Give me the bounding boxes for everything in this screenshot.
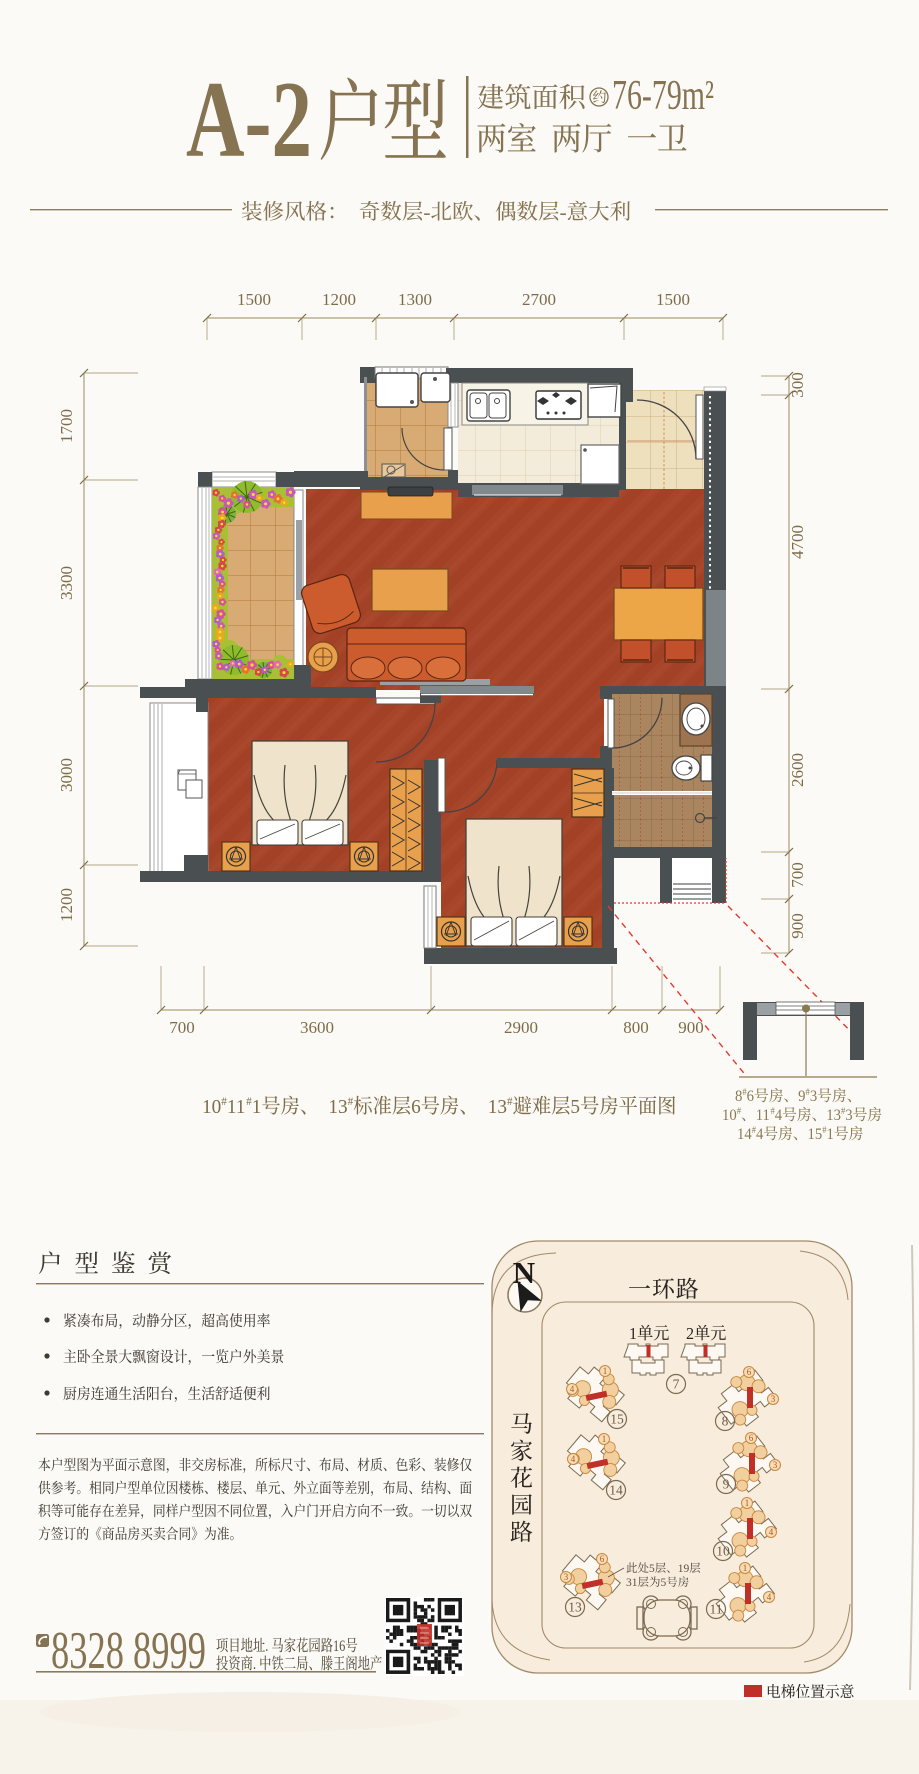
svg-text:19: 19 (678, 1563, 690, 1575)
svg-text:2700: 2700 (522, 290, 556, 309)
svg-text:3: 3 (771, 1394, 776, 1404)
svg-text:5: 5 (570, 1095, 580, 1118)
svg-text:6: 6 (747, 1367, 752, 1377)
svg-text:15: 15 (808, 1127, 823, 1143)
svg-text:2: 2 (686, 1324, 694, 1343)
svg-text:16: 16 (333, 1638, 345, 1656)
svg-text:#: # (806, 1087, 811, 1097)
svg-text:#: # (841, 1106, 846, 1116)
svg-text:15: 15 (610, 1412, 624, 1427)
svg-text:4: 4 (775, 1108, 783, 1124)
svg-text:3000: 3000 (57, 758, 76, 792)
svg-text:9: 9 (723, 1477, 730, 1492)
svg-text:13: 13 (826, 1108, 841, 1124)
svg-text:#: # (507, 1096, 513, 1108)
svg-text:700: 700 (169, 1018, 195, 1037)
svg-text:1: 1 (827, 1127, 834, 1143)
svg-text:1200: 1200 (57, 888, 76, 922)
svg-text:1: 1 (252, 1095, 262, 1118)
svg-text:6: 6 (600, 1554, 605, 1564)
svg-text:3: 3 (773, 1460, 778, 1470)
svg-text:N: N (513, 1255, 535, 1290)
svg-text:13: 13 (328, 1095, 347, 1118)
svg-text:6: 6 (411, 1095, 421, 1118)
svg-text:4700: 4700 (788, 525, 807, 559)
svg-text:10: 10 (202, 1095, 221, 1118)
svg-text:3600: 3600 (300, 1018, 334, 1037)
svg-text:10: 10 (722, 1108, 737, 1124)
svg-text:1500: 1500 (237, 290, 271, 309)
svg-text:3300: 3300 (57, 566, 76, 600)
svg-text:31: 31 (626, 1577, 638, 1589)
svg-text:4: 4 (767, 1592, 772, 1602)
svg-text:13: 13 (488, 1095, 507, 1118)
svg-text:6: 6 (749, 1433, 754, 1443)
svg-text:A-2: A-2 (186, 59, 312, 180)
svg-text:1: 1 (602, 1434, 607, 1444)
svg-text:2600: 2600 (788, 753, 807, 787)
svg-text:6: 6 (747, 1089, 755, 1105)
svg-text:2900: 2900 (504, 1018, 538, 1037)
svg-text:8: 8 (722, 1414, 729, 1429)
svg-text:3: 3 (845, 1108, 852, 1124)
svg-text:5: 5 (649, 1563, 655, 1575)
svg-text:1: 1 (745, 1498, 750, 1508)
svg-text:1: 1 (743, 1563, 748, 1573)
svg-text:11: 11 (756, 1108, 770, 1124)
svg-text:#: # (742, 1087, 747, 1097)
svg-text:10: 10 (716, 1544, 730, 1559)
svg-text:1300: 1300 (398, 290, 432, 309)
svg-text:14: 14 (609, 1483, 623, 1498)
svg-text:700: 700 (788, 862, 807, 888)
svg-text:#: # (752, 1125, 757, 1135)
svg-text:4: 4 (769, 1527, 774, 1537)
svg-text:7: 7 (673, 1377, 680, 1392)
svg-text:13: 13 (568, 1600, 582, 1615)
svg-text:4: 4 (570, 1384, 575, 1394)
svg-text:800: 800 (623, 1018, 649, 1037)
svg-text:#: # (770, 1106, 775, 1116)
svg-text:1500: 1500 (656, 290, 690, 309)
svg-text:#: # (737, 1106, 742, 1116)
svg-text:.: . (253, 1656, 256, 1674)
svg-text:#: # (246, 1096, 252, 1108)
svg-text:8: 8 (735, 1089, 742, 1105)
svg-text:#: # (348, 1096, 354, 1108)
svg-text:#: # (221, 1096, 227, 1108)
svg-text:14: 14 (737, 1127, 752, 1143)
svg-text:4: 4 (571, 1454, 576, 1464)
svg-text:3: 3 (810, 1089, 817, 1105)
svg-text:4: 4 (756, 1127, 764, 1143)
svg-text:1: 1 (603, 1366, 608, 1376)
svg-text:3: 3 (564, 1572, 569, 1582)
svg-text:76-79m²: 76-79m² (612, 73, 714, 119)
svg-text:#: # (822, 1125, 827, 1135)
svg-text:1: 1 (629, 1324, 637, 1343)
svg-text:1700: 1700 (57, 409, 76, 443)
svg-text:11: 11 (227, 1095, 246, 1118)
svg-text:-: - (423, 200, 430, 224)
svg-text:1200: 1200 (322, 290, 356, 309)
svg-text:900: 900 (678, 1018, 704, 1037)
svg-text:5: 5 (661, 1577, 667, 1589)
svg-text:11: 11 (710, 1602, 723, 1617)
svg-text:900: 900 (788, 913, 807, 939)
svg-text:.: . (265, 1638, 268, 1656)
svg-text:9: 9 (798, 1089, 805, 1105)
svg-text:-: - (559, 200, 566, 224)
svg-text:300: 300 (788, 372, 807, 398)
